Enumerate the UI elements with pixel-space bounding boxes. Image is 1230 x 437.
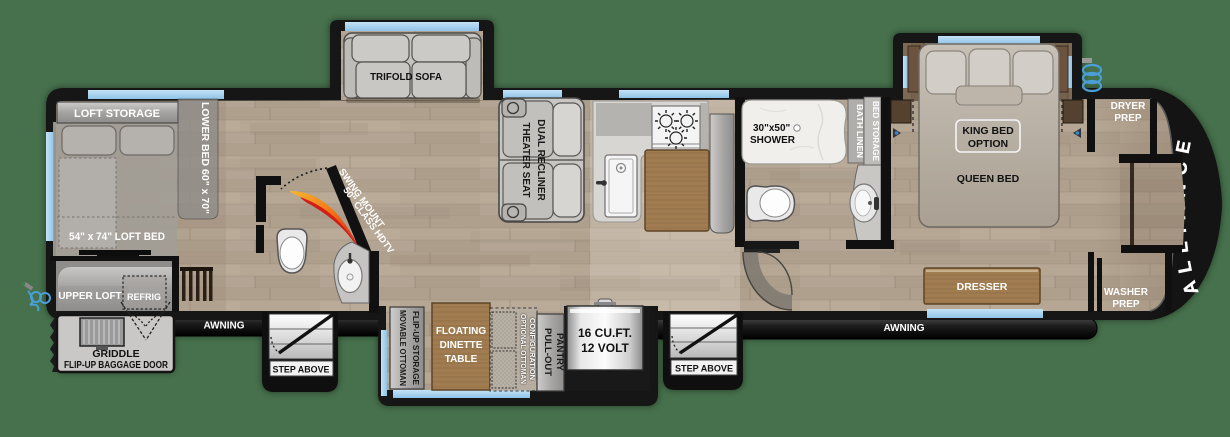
svg-text:FLIP-UP BAGGAGE DOOR: FLIP-UP BAGGAGE DOOR	[64, 359, 168, 371]
svg-text:BATH LINEN: BATH LINEN	[855, 104, 865, 158]
svg-text:TRIFOLD SOFA: TRIFOLD SOFA	[370, 72, 442, 83]
svg-text:TABLE: TABLE	[445, 354, 478, 365]
svg-text:DUAL RECLINER: DUAL RECLINER	[535, 119, 546, 201]
svg-text:16 CU.FT.: 16 CU.FT.	[578, 326, 632, 340]
svg-text:WASHER: WASHER	[1104, 287, 1149, 298]
svg-text:STEP ABOVE: STEP ABOVE	[675, 364, 734, 375]
svg-text:CONFIGURATION: CONFIGURATION	[528, 318, 537, 380]
svg-text:LOFT STORAGE: LOFT STORAGE	[74, 108, 160, 120]
svg-text:OPTION: OPTION	[968, 138, 1008, 150]
svg-text:12 VOLT: 12 VOLT	[581, 341, 629, 355]
svg-text:AWNING: AWNING	[203, 321, 244, 332]
svg-text:DINETTE: DINETTE	[440, 340, 483, 351]
svg-text:BED STORAGE: BED STORAGE	[871, 101, 881, 161]
svg-text:LOWER BED 60" x 70": LOWER BED 60" x 70"	[199, 102, 211, 214]
svg-text:MOVABLE OTTOMAN: MOVABLE OTTOMAN	[398, 310, 408, 386]
svg-text:UPPER LOFT: UPPER LOFT	[58, 291, 121, 302]
svg-text:PULL-OUT: PULL-OUT	[542, 328, 553, 376]
svg-text:KING BED: KING BED	[962, 125, 1014, 137]
svg-text:REFRIG: REFRIG	[127, 292, 161, 302]
svg-text:DRYER: DRYER	[1111, 101, 1146, 112]
svg-text:DRESSER: DRESSER	[957, 281, 1008, 293]
svg-text:FLOATING: FLOATING	[436, 326, 487, 337]
svg-text:SHOWER: SHOWER	[750, 135, 796, 146]
svg-text:OPTIONAL OTTOMAN: OPTIONAL OTTOMAN	[519, 314, 528, 384]
svg-text:FLIP-UP STORAGE: FLIP-UP STORAGE	[411, 311, 421, 385]
svg-text:AWNING: AWNING	[883, 323, 924, 334]
svg-text:PANTRY: PANTRY	[554, 333, 565, 372]
svg-text:QUEEN BED: QUEEN BED	[957, 173, 1020, 185]
svg-text:PREP: PREP	[1114, 113, 1142, 124]
svg-text:THEATER SEAT: THEATER SEAT	[520, 122, 531, 197]
svg-text:STEP ABOVE: STEP ABOVE	[273, 365, 331, 376]
svg-text:54" x 74" LOFT BED: 54" x 74" LOFT BED	[69, 231, 165, 243]
svg-text:30"x50": 30"x50"	[753, 123, 791, 134]
svg-text:PREP: PREP	[1112, 299, 1140, 310]
